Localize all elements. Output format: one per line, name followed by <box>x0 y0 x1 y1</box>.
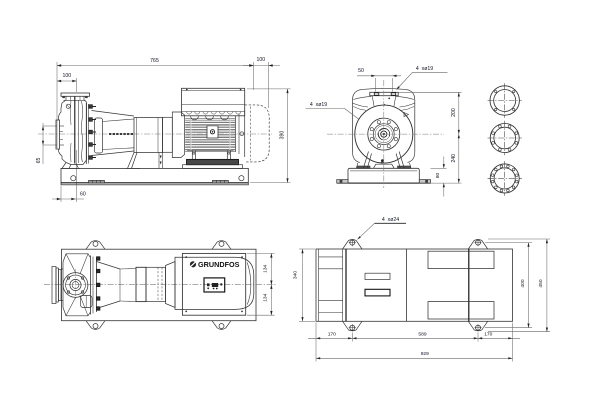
svg-text:340: 340 <box>293 271 299 279</box>
svg-text:GRUNDFOS: GRUNDFOS <box>198 262 240 269</box>
svg-text:50: 50 <box>358 68 364 74</box>
svg-text:65: 65 <box>36 158 42 164</box>
svg-text:4 xø24: 4 xø24 <box>382 217 399 223</box>
svg-text:134: 134 <box>262 293 268 301</box>
svg-text:4 xø19: 4 xø19 <box>416 66 433 72</box>
svg-text:450: 450 <box>538 279 544 287</box>
svg-text:240: 240 <box>451 154 457 163</box>
svg-text:929: 929 <box>421 351 429 357</box>
svg-text:765: 765 <box>150 58 159 64</box>
svg-text:400: 400 <box>520 279 526 287</box>
svg-text:100: 100 <box>62 73 71 79</box>
svg-text:60: 60 <box>80 191 86 197</box>
svg-text:589: 589 <box>418 331 426 337</box>
svg-text:170: 170 <box>328 331 336 337</box>
svg-text:4 xø19: 4 xø19 <box>310 102 327 108</box>
svg-text:100: 100 <box>256 57 265 63</box>
svg-text:80: 80 <box>435 173 441 179</box>
svg-text:200: 200 <box>451 108 457 117</box>
svg-text:170: 170 <box>484 331 492 337</box>
svg-text:134: 134 <box>262 264 268 272</box>
svg-text:390: 390 <box>279 131 285 140</box>
